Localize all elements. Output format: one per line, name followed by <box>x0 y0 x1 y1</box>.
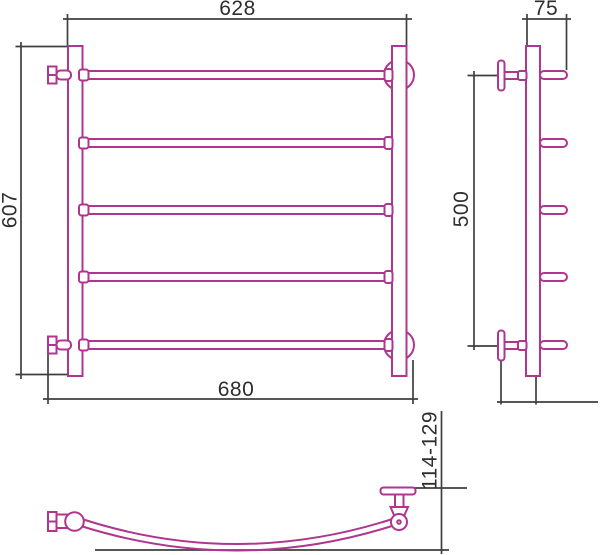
rung-cap-right <box>385 271 393 283</box>
rung <box>88 273 385 281</box>
rung-cap-right <box>385 69 393 81</box>
front-right-rail <box>392 46 407 376</box>
rung <box>88 206 385 214</box>
rung-cap-right <box>385 204 393 216</box>
dim-label-mount-height: 500 <box>450 191 473 228</box>
dim-label-wall-clearance: 114-129 <box>419 411 442 490</box>
side-stub <box>540 273 567 281</box>
rung <box>88 341 385 349</box>
side-stub <box>540 206 567 214</box>
rung-cap-right <box>385 137 393 149</box>
wall-flange-bottom <box>498 331 527 361</box>
side-rail <box>526 46 540 376</box>
valve-stub <box>57 71 72 80</box>
dim-label-height: 607 <box>0 192 22 229</box>
technical-drawing: 628 607 680 75 500 114-129 <box>0 0 600 555</box>
dim-label-top-width: 628 <box>219 0 256 20</box>
bracket-shaft <box>395 494 404 508</box>
flange-disc <box>498 331 505 361</box>
front-view <box>48 46 414 376</box>
side-stub <box>540 71 567 79</box>
top-wall-bracket <box>381 488 416 531</box>
rung-cap-left <box>79 205 89 216</box>
bracket-joint-circle <box>391 514 407 530</box>
curved-rail-outer-edge <box>83 526 393 551</box>
top-view <box>48 488 416 551</box>
top-elbow-circle <box>65 512 84 531</box>
rung-cap-left <box>79 340 89 351</box>
flange-collar <box>518 71 527 80</box>
side-stub <box>540 139 567 147</box>
dimension-lines <box>16 14 599 554</box>
rung <box>88 139 385 147</box>
rung-cap-left <box>79 70 89 81</box>
rung-cap-left <box>79 272 89 283</box>
curved-rail-inner-edge <box>84 519 393 544</box>
drawing-svg: 628 607 680 75 500 114-129 <box>0 0 600 555</box>
valve-stub <box>57 341 72 350</box>
rung-cap-left <box>79 138 89 149</box>
rung-cap-right <box>385 339 393 351</box>
side-view <box>498 46 567 376</box>
flange-collar <box>518 341 527 350</box>
wall-flange-top <box>498 61 527 91</box>
dim-label-side-depth: 75 <box>534 0 558 20</box>
bracket-plate <box>381 488 416 495</box>
rung <box>88 71 385 79</box>
dim-label-bottom-width: 680 <box>218 378 255 401</box>
side-stub <box>540 341 567 349</box>
flange-disc <box>498 61 505 91</box>
